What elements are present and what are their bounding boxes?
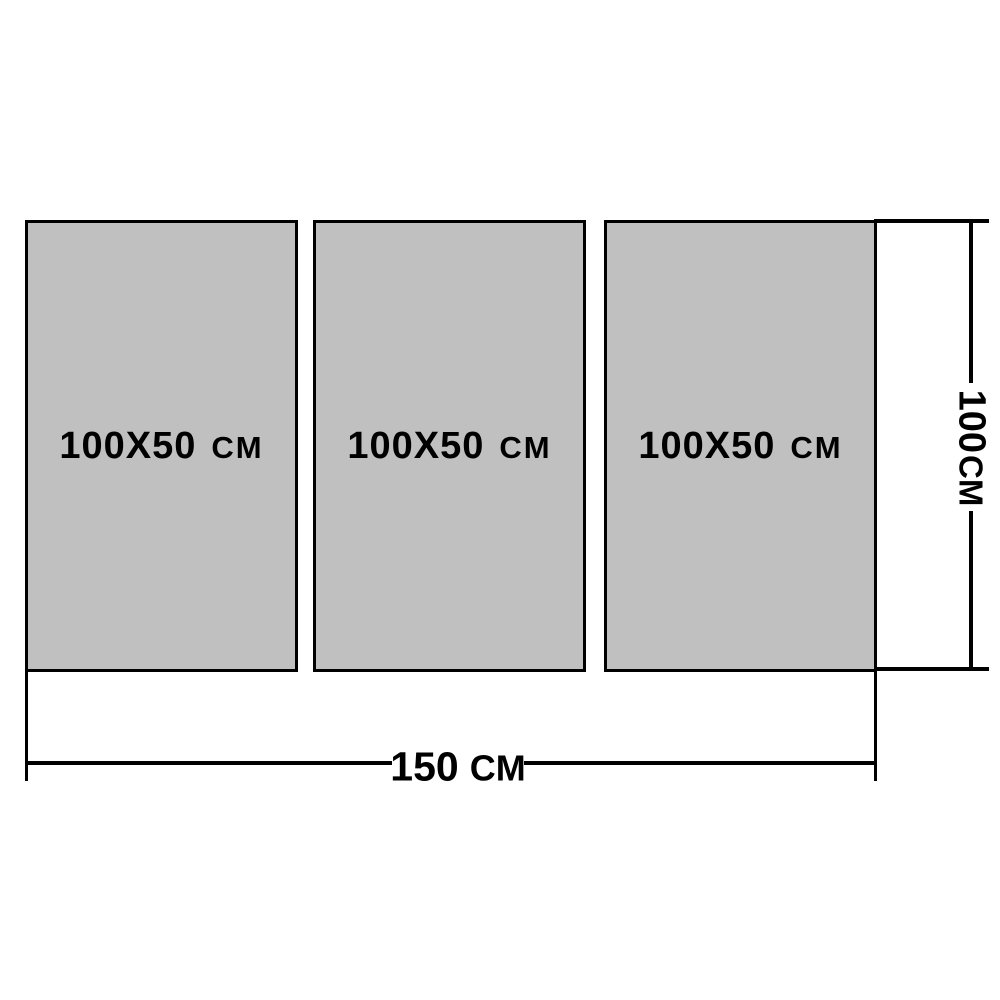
panel-1-size-label: 100X50 CM — [59, 425, 263, 468]
height-dimension-line-top — [969, 221, 973, 383]
panel-1-size-value: 100X50 — [59, 425, 196, 468]
width-dimension-line-right — [524, 761, 876, 765]
width-dimension-value: 150 — [390, 744, 458, 791]
height-dimension-line-bottom — [969, 511, 973, 671]
height-dimension-label: 100 CM — [950, 390, 993, 507]
height-dimension-unit: CM — [952, 455, 990, 506]
panel-2: 100X50 CM — [313, 220, 586, 672]
panel-1: 100X50 CM — [25, 220, 298, 672]
size-diagram: 100X50 CM 100X50 CM 100X50 CM 150 CM 100… — [0, 0, 1000, 1000]
height-dimension-value: 100 — [950, 390, 993, 453]
width-dimension-unit: CM — [470, 748, 526, 790]
panel-3-size-label: 100X50 CM — [638, 425, 842, 468]
panel-2-size-label: 100X50 CM — [347, 425, 551, 468]
panel-3-size-value: 100X50 — [638, 425, 775, 468]
width-dimension-label: 150 CM — [390, 744, 525, 791]
width-dimension-line-left — [25, 761, 392, 765]
panel-3-size-unit: CM — [790, 430, 842, 466]
panel-2-size-value: 100X50 — [347, 425, 484, 468]
panel-3: 100X50 CM — [604, 220, 877, 672]
panel-2-size-unit: CM — [499, 430, 551, 466]
panel-1-size-unit: CM — [211, 430, 263, 466]
